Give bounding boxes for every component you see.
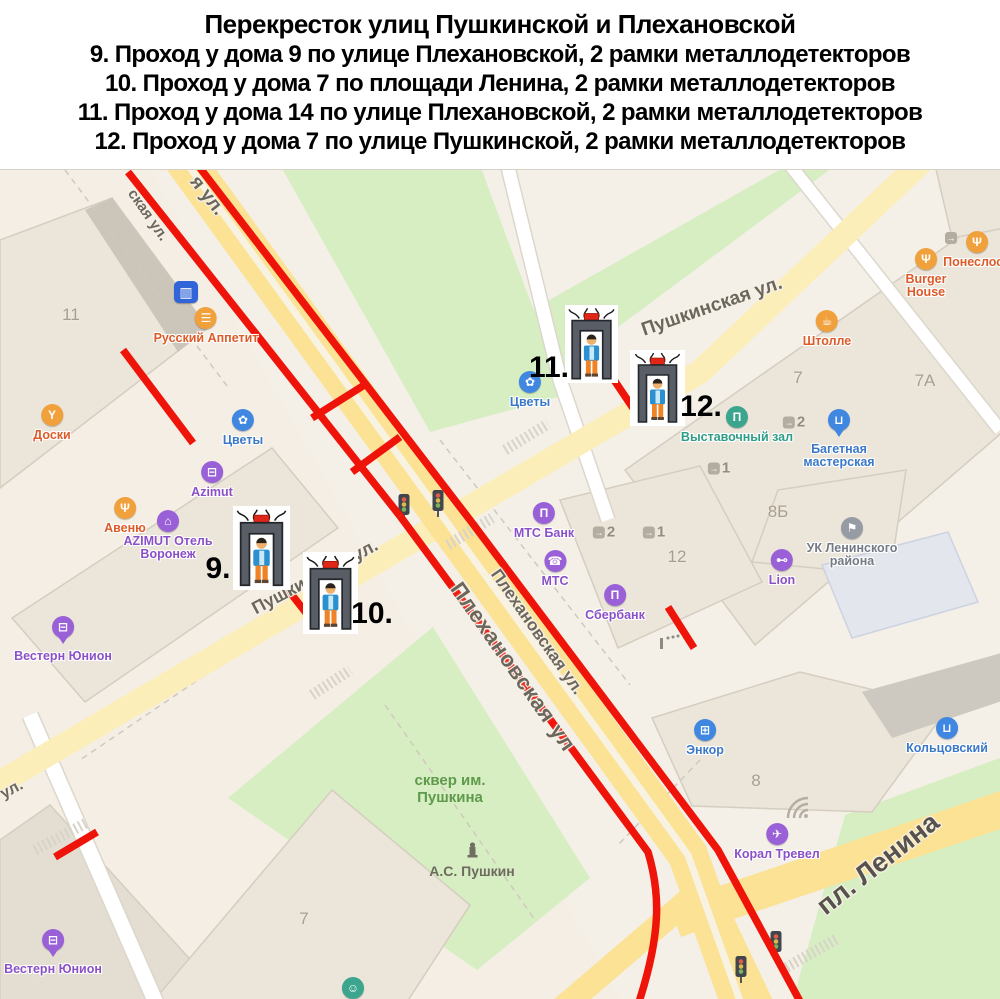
page-title: Перекресток улиц Пушкинской и Плехановск… [0,9,1000,40]
airplane-icon: ✈ [766,823,788,845]
burger-icon: ☰ [195,307,217,329]
dumbbell-icon: ⊷ [771,549,793,571]
monument-label: А.С. Пушкин [429,863,514,879]
building-number: 7 [299,909,308,929]
legend-line-12: 12. Проход у дома 7 по улице Пушкинской,… [0,127,1000,156]
poi-mts: ☎ МТС [541,550,568,588]
flower-icon: ✿ [232,409,254,431]
legend-line-11: 11. Проход у дома 14 по улице Плехановск… [0,98,1000,127]
poi-russky-appetit: ☰ Русский Аппетит [154,307,259,345]
detector-number-9: 9. [205,552,230,586]
cafe-icon: ☕ [816,310,838,332]
bank-icon: Π [604,584,626,606]
restaurant-icon: Ψ [915,248,937,270]
briefcase-icon: ⊟ [42,929,64,951]
door-icon: → [708,462,720,474]
poi-coral-travel: ✈ Корал Тревел [734,823,819,861]
poi-cvety-1: ✿ Цветы [223,409,263,447]
door-icon: → [593,526,605,538]
bag-icon: ⊔ [828,409,850,431]
bar-icon: Y [41,404,63,426]
bag-icon: ⊔ [936,717,958,739]
annotated-map-page: Перекресток улиц Пушкинской и Плехановск… [0,0,1000,999]
legend-line-10: 10. Проход у дома 7 по площади Ленина, 2… [0,69,1000,98]
tram-stop-icon: ▥ [174,281,198,303]
detector-number-10: 10. [351,597,393,631]
metal-detector-icon-10 [303,552,358,634]
hotel-icon: ⌂ [157,510,179,532]
entrance-marker: →2 [593,524,615,541]
flag-icon: ⚑ [841,517,863,539]
poi-theater: ☺ [342,977,364,999]
entrance-marker: →1 [708,460,730,477]
poi-poneslos: Ψ Понеслось [943,231,1000,269]
metal-detector-icon-12 [630,350,685,426]
poi-sberbank: Π Сбербанк [585,584,645,622]
metal-detector-icon-11 [565,305,618,383]
building-number: 7 [793,368,802,388]
map-view: ская ул. я ул. Пушкинская ул. Пушкинская… [0,170,1000,999]
poi-enkor: ⊞ Энкор [686,719,724,757]
poi-shtolle: ☕ Штолле [803,310,852,348]
building-number: 11 [62,305,80,325]
building-number: 7А [915,371,936,391]
bank-icon: Π [533,502,555,524]
poi-azimut: ⊟ Azimut [191,461,233,499]
phone-icon: ☎ [544,550,566,572]
poi-uk-leninskogo: ⚑ УК Ленинского района [792,517,912,568]
briefcase-icon: ⊟ [201,461,223,483]
poi-western-union-2: ⊟ Вестерн Юнион [4,929,102,976]
poi-mts-bank: Π МТС Банк [514,502,574,540]
restaurant-icon: Ψ [966,231,988,253]
museum-icon: Π [726,406,748,428]
detector-number-12: 12. [680,390,722,424]
building-number: 12 [668,547,687,567]
poi-bagetnaya: ⊔ Багетная мастерская [793,409,885,469]
legend-line-9: 9. Проход у дома 9 по улице Плехановской… [0,40,1000,69]
detector-number-11: 11. [529,351,569,385]
building-number: 8 [751,771,760,791]
briefcase-icon: ⊟ [52,616,74,638]
building-number: 8Б [768,502,789,522]
poi-kolcovsky: ⊔ Кольцовский [906,717,988,755]
poi-doski: Y Доски [33,404,70,442]
entrance-marker: →1 [643,524,665,541]
door-icon: → [643,526,655,538]
poi-western-union-1: ⊟ Вестерн Юнион [14,616,112,663]
header: Перекресток улиц Пушкинской и Плехановск… [0,0,1000,170]
metal-detector-icon-9 [233,506,290,590]
cart-icon: ⊞ [694,719,716,741]
park-label: сквер им. Пушкина [395,772,505,806]
theater-mask-icon: ☺ [342,977,364,999]
